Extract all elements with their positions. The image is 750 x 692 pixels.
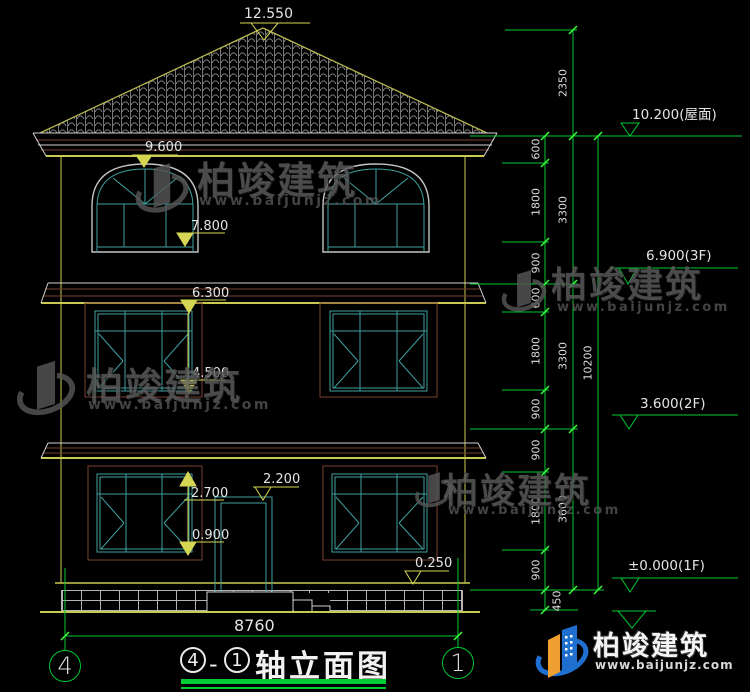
- watermark-4-url: www.baijunjz.com: [448, 503, 621, 518]
- watermark-3: [498, 262, 550, 322]
- footer-url: www.baijunjz.com: [595, 658, 734, 672]
- title-bubble-left-number: 4: [187, 650, 198, 671]
- dim-tier1-6: 900: [530, 440, 543, 461]
- axis-bubble-right-number: 1: [450, 649, 465, 677]
- window-2f-right: [320, 303, 437, 397]
- footer-logo: [532, 618, 592, 686]
- peak-elevation-label: 12.550: [244, 6, 293, 22]
- level-2f-label: 3.600(2F): [640, 396, 706, 412]
- axis-bubble-left-number: 4: [57, 652, 72, 680]
- dim-tier1-4: 1800: [530, 337, 543, 365]
- dimension-lines: [65, 30, 742, 650]
- watermark-logo-icon: [12, 353, 80, 421]
- title-underline-thin: [181, 687, 386, 689]
- door-steps: [207, 592, 330, 612]
- title-bubble-right: 1: [224, 647, 250, 673]
- title-bubble-left: 4: [180, 647, 206, 673]
- entry-door: [215, 497, 272, 592]
- dim-tier1-8: 900: [530, 560, 543, 581]
- roof-outline: [40, 28, 487, 133]
- window1-sill-label: 0.900: [192, 528, 229, 543]
- eave-elevation-label: 9.600: [145, 140, 182, 155]
- plinth-elevation-label: 0.250: [415, 556, 452, 571]
- window1-top-label: 2.700: [191, 486, 228, 501]
- watermark-2: [12, 353, 80, 425]
- level-1f-label: ±0.000(1F): [628, 558, 705, 574]
- belt-band-3f: [41, 283, 486, 303]
- overall-width-label: 8760: [234, 616, 275, 635]
- watermark-3-url: www.baijunjz.com: [557, 300, 730, 315]
- axis-bubble-right: 1: [442, 647, 474, 679]
- dim-tier1-5: 900: [530, 399, 543, 420]
- company-logo-icon: [532, 618, 592, 682]
- dim-tier1-1: 1800: [530, 188, 543, 216]
- watermark-1: [131, 156, 193, 222]
- dim-tier2-2: 3300: [557, 342, 570, 370]
- watermark-logo-icon: [131, 156, 193, 218]
- level-roof-label: 10.200(屋面): [632, 103, 717, 123]
- elevation-drawing: 12.550 9.600 7.800 6.300 4.500 2.700 0.9…: [0, 0, 750, 692]
- title-bubble-right-number: 1: [231, 650, 242, 671]
- dim-tier1-9: 450: [551, 591, 564, 612]
- title-separator: -: [209, 650, 218, 678]
- watermark-logo-icon: [498, 262, 550, 318]
- door-top-label: 2.200: [263, 472, 300, 487]
- belt-elevation-label: 6.300: [192, 286, 229, 301]
- dim-tier2-0: 2350: [557, 69, 570, 97]
- watermark-1-url: www.baijunjz.com: [199, 193, 382, 209]
- dim-tier1-0: 600: [530, 139, 543, 160]
- watermark-2-url: www.baijunjz.com: [88, 397, 271, 413]
- dim-tier2-1: 3300: [557, 196, 570, 224]
- window3-top-label: 7.800: [191, 219, 228, 234]
- title-underline-thick: [181, 679, 386, 684]
- belt-band-2f: [41, 443, 486, 458]
- axis-bubble-left: 4: [49, 650, 81, 682]
- dim-tier3-0: 10200: [582, 346, 595, 381]
